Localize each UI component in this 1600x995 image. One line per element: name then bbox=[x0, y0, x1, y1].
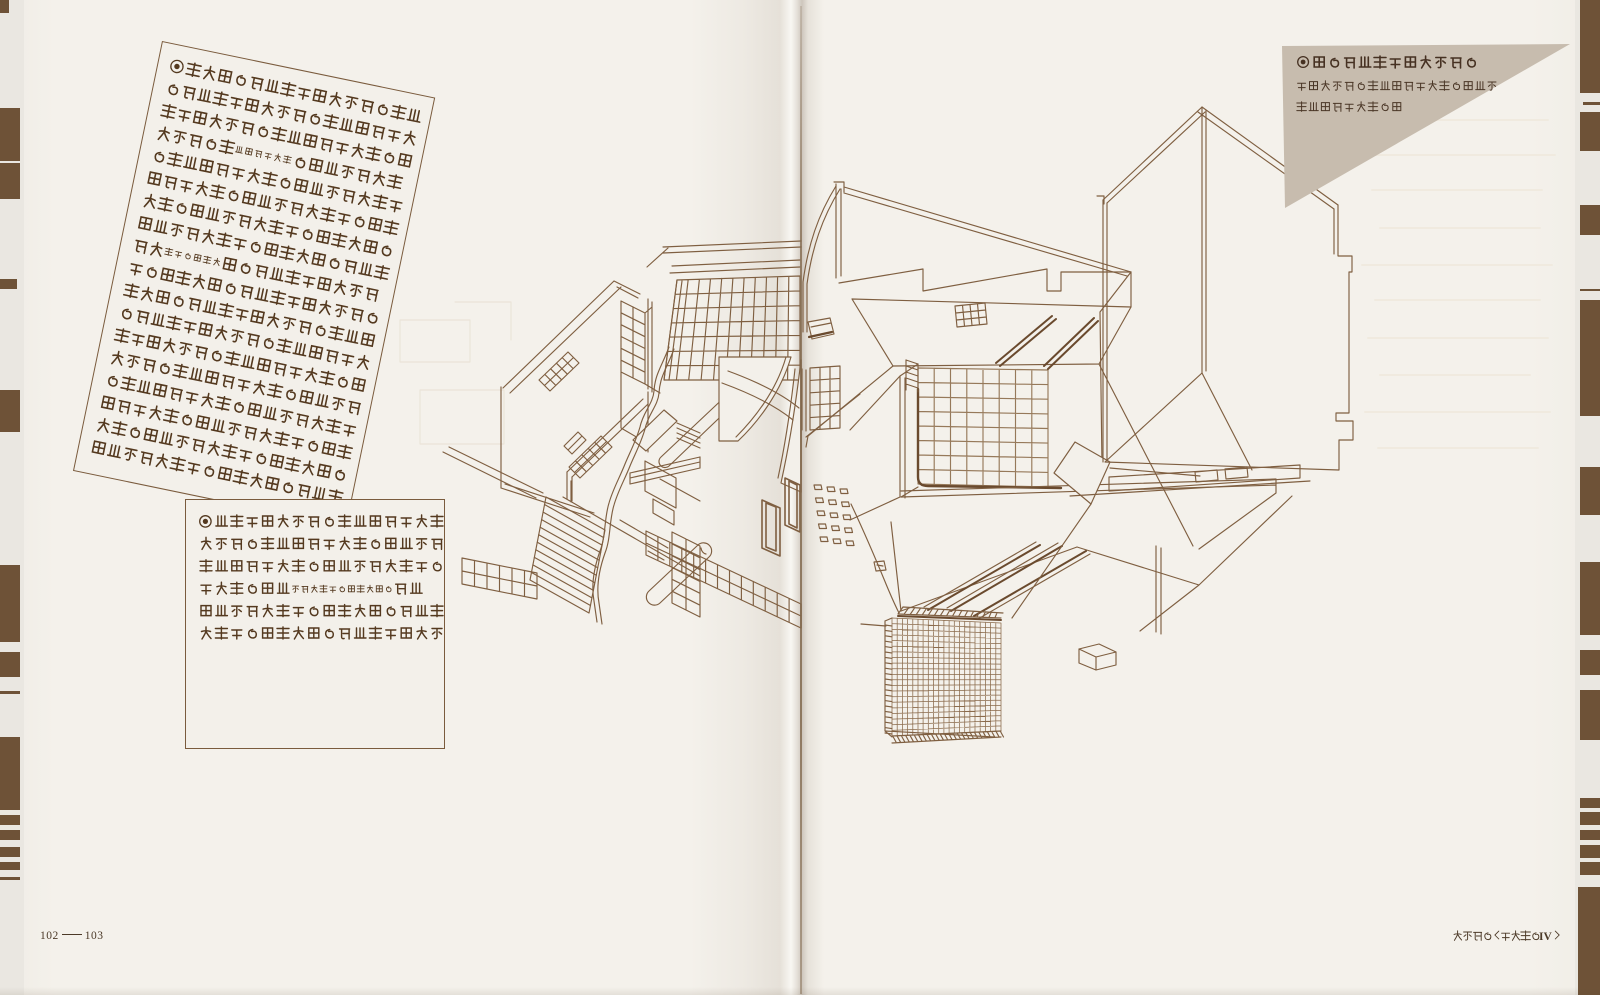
svg-text:IV: IV bbox=[1539, 931, 1552, 943]
